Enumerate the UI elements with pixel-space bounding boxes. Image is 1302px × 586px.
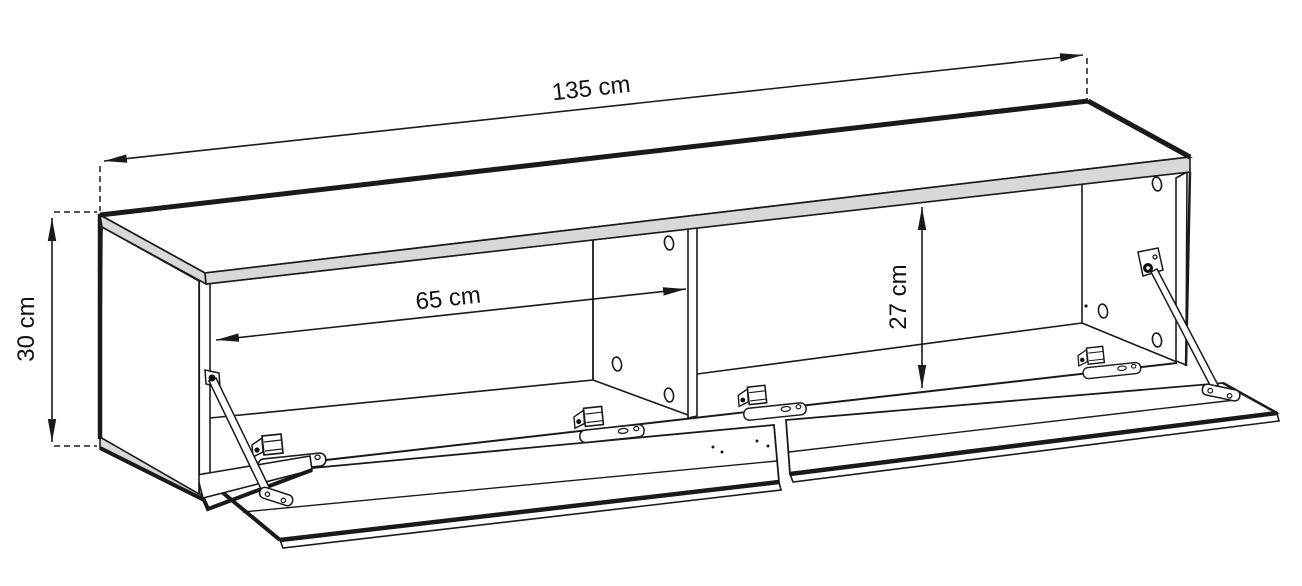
height-dimension-label: 30 cm (13, 296, 40, 361)
divider-front-edge (688, 227, 697, 418)
drill-mark (1084, 304, 1087, 307)
furniture-dimension-diagram: 135 cm 30 cm 65 cm 27 cm (0, 0, 1302, 586)
cabinet-technical-drawing: 135 cm 30 cm 65 cm 27 cm (0, 0, 1302, 586)
drawing-root: 135 cm 30 cm 65 cm 27 cm (0, 0, 1302, 586)
inner-height-dimension-label: 27 cm (885, 264, 912, 329)
